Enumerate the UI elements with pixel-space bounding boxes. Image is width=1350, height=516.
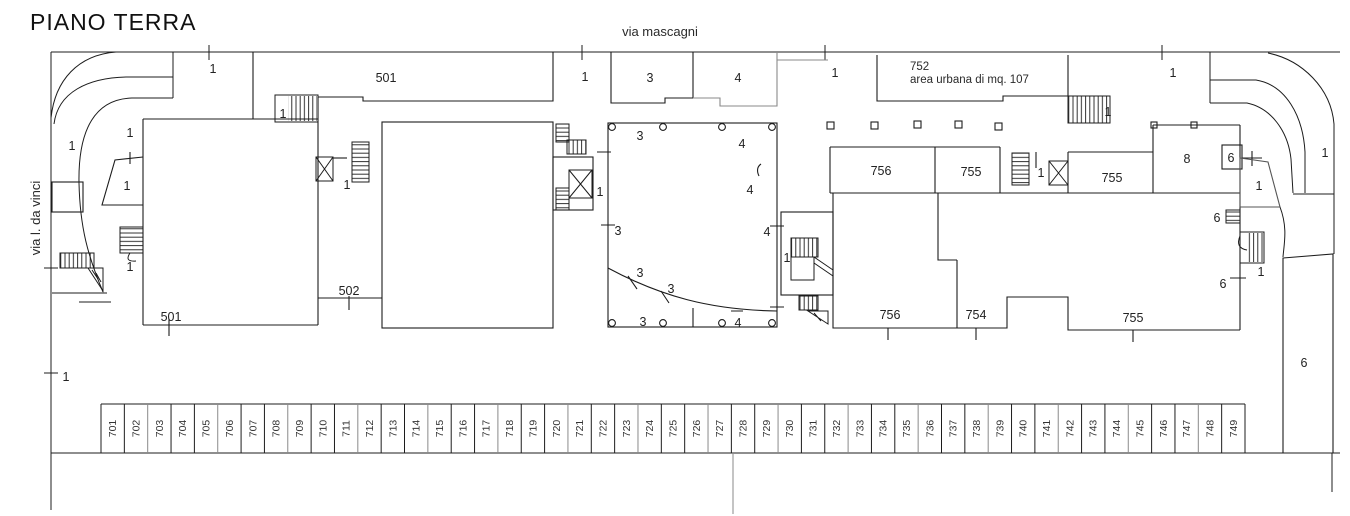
roads-and-boundaries [44,45,1340,514]
parking-stall-number: 721 [574,420,586,438]
parking-stall-number: 734 [878,420,890,438]
plan-label: 6 [1301,356,1308,370]
plan-label: 1 [1170,66,1177,80]
plan-label: 3 [647,71,654,85]
stairs-and-elevators [60,95,1264,324]
parking-stall-number: 736 [924,420,936,438]
page-title: PIANO TERRA [30,9,197,35]
plan-label: 3 [668,282,675,296]
courtyard-columns [609,124,776,327]
plan-label: 4 [735,71,742,85]
courtyard-curve [608,268,777,311]
plan-label: 1 [1105,105,1112,119]
plan-label: 755 [961,165,982,179]
parking-stall-number: 748 [1204,420,1216,438]
plan-label: 756 [871,164,892,178]
plan-label: 1 [124,179,131,193]
wall-502 [318,296,382,310]
street-label-via-mascagni: via mascagni [622,24,698,39]
parking-stall-number: 749 [1228,420,1240,438]
parking-stall-number: 719 [527,420,539,438]
parking-stall-number: 732 [831,420,843,438]
plan-labels: 1111501341111115025011344343334117567551… [63,62,1329,384]
plan-label: 6 [1220,277,1227,291]
plan-label: 4 [735,316,742,330]
parking-stall-number: 729 [761,420,773,438]
parking-stall-number: 728 [738,420,750,438]
parking-stall-number: 717 [481,420,493,438]
parking-stall-number: 703 [154,420,166,438]
parking-stall-number: 746 [1158,420,1170,438]
divider-754 [938,193,957,328]
room-6-large [1283,254,1333,453]
parking-stall-number: 733 [854,420,866,438]
parking-stall-number: 701 [107,420,119,438]
plan-label: 1 [597,185,604,199]
stairs-below-wedge [808,311,828,324]
parking-stall-number: 714 [411,420,423,438]
parking-stall-number: 715 [434,420,446,438]
corner-arc-tl-mid [54,77,173,124]
stairs-gap1 [352,142,369,182]
parking-stall-number: 711 [341,420,353,437]
plan-label: 1 [210,62,217,76]
plan-label: 3 [615,224,622,238]
parking-stall-number: 710 [317,420,329,438]
stairs-right-column-treads [1247,233,1263,262]
parking-stall-number: 706 [224,420,236,438]
parking-stall-number: 722 [597,420,609,438]
plan-label: 502 [339,284,360,298]
plan-label: 1 [69,139,76,153]
plan-label: 756 [880,308,901,322]
plan-label: 1 [1322,146,1329,160]
floor-plan-canvas: PIANO TERRA via mascagni via l. da vinci… [0,0,1350,516]
courtyard [608,123,777,327]
parking-stall-number: 739 [994,420,1006,438]
stairs-gap2-lower [556,188,569,210]
parking-stall-number: 726 [691,420,703,438]
parking-stall-number: 727 [714,420,726,438]
parking-stall-number: 712 [364,420,376,438]
parking-stall-number: 718 [504,420,516,438]
parking-stall-number: 741 [1041,420,1053,438]
parking-stall-number: 723 [621,420,633,438]
elevator-gap2-x [569,170,592,198]
plan-label: 1 [63,370,70,384]
corner-arc-tl-inner [79,98,173,183]
parcel-752-note: area urbana di mq. 107 [910,74,1029,86]
stairs-left-edge [60,253,94,268]
parking-stall-number: 704 [177,420,189,438]
parking-stall-number: 731 [808,420,820,438]
plan-label: 1 [280,107,287,121]
corner-arc-tl-outer [51,52,116,118]
plan-label: 754 [966,308,987,322]
stairwell-wedge [814,257,833,276]
stairs-east-upper [1012,153,1029,185]
parcel-752-number: 752 [910,61,929,73]
parking-stall-number: 725 [668,420,680,438]
street-label-via-l-da-vinci: via l. da vinci [28,181,43,256]
parking-stall-number: 720 [551,420,563,438]
building-east-rooms [1068,125,1240,330]
parking-stall-number: 709 [294,420,306,438]
plan-label: 1 [1258,265,1265,279]
floor-plan-drawing: PIANO TERRA via mascagni via l. da vinci… [0,0,1350,516]
parking-stall-number: 747 [1181,420,1193,438]
elevator-east-x [1049,161,1068,185]
parking-stall-number: 740 [1018,420,1030,438]
stairwell-treads [791,238,818,257]
plan-label: 1 [127,260,134,274]
plan-label: 3 [637,129,644,143]
buildings [52,52,1333,453]
stairs-west-building [120,227,143,253]
parking-stall-number: 716 [457,420,469,438]
parking-stall-number: 730 [784,420,796,438]
plan-label: 755 [1102,171,1123,185]
building-west [143,97,318,325]
corner-arc-tr-mid [1210,80,1305,193]
parking-stall-number: 713 [387,420,399,438]
parking-stall-number: 743 [1088,420,1100,438]
pillar-squares [827,121,1197,130]
parking-stall-number: 737 [948,420,960,438]
stairs-below-stairwell [799,296,818,310]
plan-label: 1 [1038,166,1045,180]
parking-stall-number: 708 [271,420,283,438]
parking-stall-number: 738 [971,420,983,438]
plan-label: 1 [1256,179,1263,193]
plan-label: 501 [376,71,397,85]
parking-stall-number: 744 [1111,420,1123,438]
parking-stall-number: 702 [131,420,143,438]
plan-label: 6 [1228,151,1235,165]
building-central [382,122,553,328]
parking-stall-number: 742 [1064,420,1076,438]
plan-label: 755 [1123,311,1144,325]
room-left-bay [102,157,143,205]
plan-label: 1 [582,70,589,84]
plan-label: 8 [1184,152,1191,166]
stairs-6-ladder [1226,210,1240,223]
plan-label: 4 [764,225,771,239]
room-left-box [52,182,83,212]
plan-label: 1 [784,251,791,265]
parking-stall-number: 707 [247,420,259,438]
curb-curve-right-lower [1280,207,1285,257]
parking-stall-number: 724 [644,420,656,438]
plan-label: 1 [127,126,134,140]
building-east-upper [830,147,1240,193]
stairs-gap2-mid [567,140,586,154]
corner-arc-tr-outer [1268,53,1334,124]
plan-label: 3 [640,315,647,329]
ticks-east-lower [888,278,1246,342]
parking-stall-number: 705 [201,420,213,438]
parking-row: 7017027037047057067077087097107117127137… [101,404,1245,453]
stairwell-landing [791,257,814,280]
plan-label: 1 [832,66,839,80]
plan-label: 4 [747,183,754,197]
plan-label: 501 [161,310,182,324]
plan-label: 6 [1214,211,1221,225]
stairs-gap2-upper [556,124,569,142]
parking-stall-number: 745 [1134,420,1146,438]
plan-label: 4 [739,137,746,151]
parking-stall-number: 735 [901,420,913,438]
plan-label: 3 [637,266,644,280]
plan-label: 1 [344,178,351,192]
stairs-north-strip-treads [288,96,317,121]
courtyard-mark [758,164,761,176]
